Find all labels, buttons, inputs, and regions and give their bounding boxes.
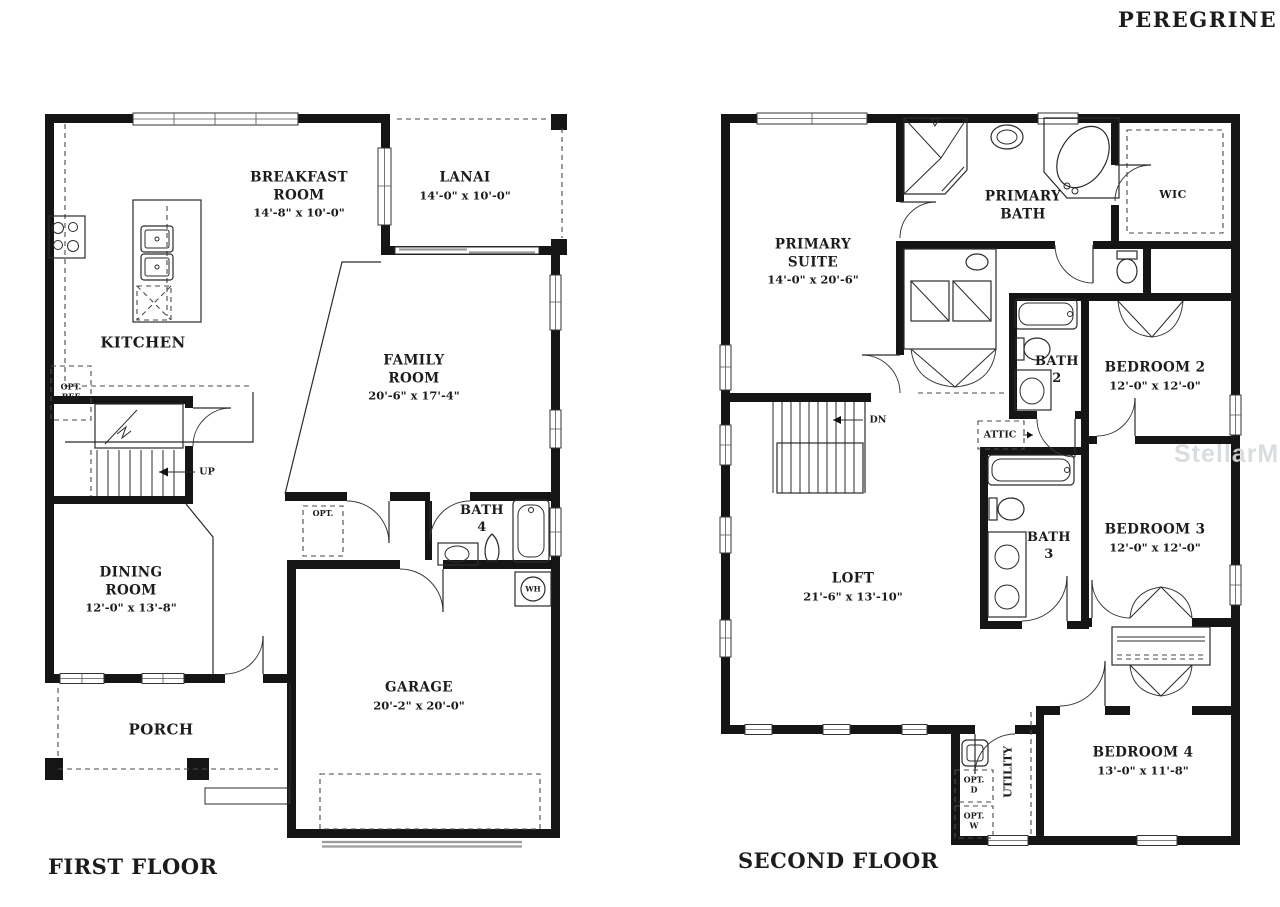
room-name: LOFT	[803, 570, 902, 588]
second-floor-drawing	[715, 110, 1250, 852]
room-dims: 13'-0" x 11'-8"	[1093, 763, 1194, 778]
room-label-bedroom3: BEDROOM 3 12'-0" x 12'-0"	[1105, 521, 1206, 554]
room-dims: 21'-6" x 13'-10"	[803, 589, 902, 604]
room-label-primary-suite: PRIMARY SUITE 14'-0" x 20'-6"	[767, 236, 858, 287]
room-name: SUITE	[767, 254, 858, 272]
room-dims: 12'-0" x 12'-0"	[1105, 378, 1206, 393]
room-dims: 14'-0" x 20'-6"	[767, 273, 858, 288]
stairs-down	[773, 402, 865, 493]
room-name: BATH	[460, 503, 504, 520]
room-name: ROOM	[250, 187, 348, 205]
room-name: PRIMARY	[767, 236, 858, 254]
room-name: PRIMARY	[985, 188, 1061, 206]
room-name: 3	[1027, 547, 1071, 564]
room-name: BEDROOM 2	[1105, 359, 1206, 377]
room-dims: 20'-2" x 20'-0"	[373, 698, 464, 713]
room-dims: 20'-6" x 17'-4"	[368, 389, 459, 404]
annotation-up: UP	[199, 466, 214, 477]
room-label-garage: GARAGE 20'-2" x 20'-0"	[373, 679, 464, 712]
room-name: KITCHEN	[100, 333, 185, 353]
first-floor-plan: BREAKFAST ROOM 14'-8" x 10'-0" LANAI 14'…	[45, 110, 570, 900]
first-floor-drawing	[45, 110, 570, 852]
room-name: BREAKFAST	[250, 169, 348, 187]
room-dims: 12'-0" x 13'-8"	[85, 601, 176, 616]
room-name: BEDROOM 4	[1093, 744, 1194, 762]
annotation-opt-ref: OPT. REF	[61, 382, 82, 401]
room-name: 4	[460, 520, 504, 537]
room-label-bath3: BATH 3	[1027, 530, 1071, 564]
primary-bath-fixtures	[904, 117, 1137, 387]
room-name: BEDROOM 3	[1105, 521, 1206, 539]
room-label-family: FAMILY ROOM 20'-6" x 17'-4"	[368, 352, 459, 403]
annotation-opt-d: OPT. D	[964, 775, 985, 794]
first-floor-walls	[45, 114, 567, 838]
room-dims: 14'-8" x 10'-0"	[250, 206, 348, 221]
room-label-bath2: BATH 2	[1035, 354, 1079, 388]
room-label-loft: LOFT 21'-6" x 13'-10"	[803, 570, 902, 603]
room-label-dining: DINING ROOM 12'-0" x 13'-8"	[85, 564, 176, 615]
room-boundaries	[186, 262, 381, 674]
room-name: BATH	[1027, 530, 1071, 547]
room-label-wic: WIC	[1159, 188, 1186, 202]
room-label-lanai: LANAI 14'-0" x 10'-0"	[419, 169, 510, 202]
room-name: ROOM	[85, 582, 176, 600]
second-floor-plan: PRIMARY SUITE 14'-0" x 20'-6" PRIMARY BA…	[715, 110, 1250, 900]
annotation-opt-w: OPT. W	[964, 811, 985, 830]
room-dims: 14'-0" x 10'-0"	[419, 188, 510, 203]
annotation-wh: WH	[525, 585, 541, 594]
room-label-utility: UTILITY	[1001, 746, 1014, 798]
room-name: PORCH	[129, 720, 194, 740]
room-label-primary-bath: PRIMARY BATH	[985, 188, 1061, 223]
room-name: FAMILY	[368, 352, 459, 370]
room-label-bath4: BATH 4	[460, 503, 504, 537]
room-name: LANAI	[419, 169, 510, 187]
room-name: GARAGE	[373, 679, 464, 697]
watermark: StellarMLS	[1174, 440, 1280, 469]
room-label-bedroom4: BEDROOM 4 13'-0" x 11'-8"	[1093, 744, 1194, 777]
room-name: 2	[1035, 371, 1079, 388]
annotation-attic: ATTIC	[984, 429, 1017, 440]
room-label-bedroom2: BEDROOM 2 12'-0" x 12'-0"	[1105, 359, 1206, 392]
annotation-opt: OPT.	[313, 509, 334, 519]
room-dims: 12'-0" x 12'-0"	[1105, 540, 1206, 555]
plan-title: PEREGRINE	[1118, 7, 1277, 32]
second-floor-doors	[862, 165, 1192, 774]
room-name: BATH	[985, 206, 1061, 224]
room-name: WIC	[1159, 188, 1186, 202]
annotation-line: W	[964, 821, 985, 831]
room-name: BATH	[1035, 354, 1079, 371]
annotation-line: REF	[61, 392, 82, 402]
closet-shelving	[1112, 627, 1210, 665]
floor-plan-page: PEREGRINE	[0, 0, 1280, 907]
annotation-dn: DN	[870, 414, 887, 425]
room-name: ROOM	[368, 370, 459, 388]
second-floor-walls	[721, 114, 1240, 845]
room-label-breakfast: BREAKFAST ROOM 14'-8" x 10'-0"	[250, 169, 348, 220]
stairs-up	[91, 404, 195, 496]
wic-shelving	[1127, 130, 1223, 233]
room-name: DINING	[85, 564, 176, 582]
room-label-porch: PORCH	[129, 720, 194, 740]
annotation-line: D	[964, 785, 985, 795]
first-floor-label: FIRST FLOOR	[48, 854, 218, 879]
porch-outline	[58, 683, 290, 804]
second-floor-label: SECOND FLOOR	[738, 848, 939, 873]
room-label-kitchen: KITCHEN	[100, 333, 185, 353]
